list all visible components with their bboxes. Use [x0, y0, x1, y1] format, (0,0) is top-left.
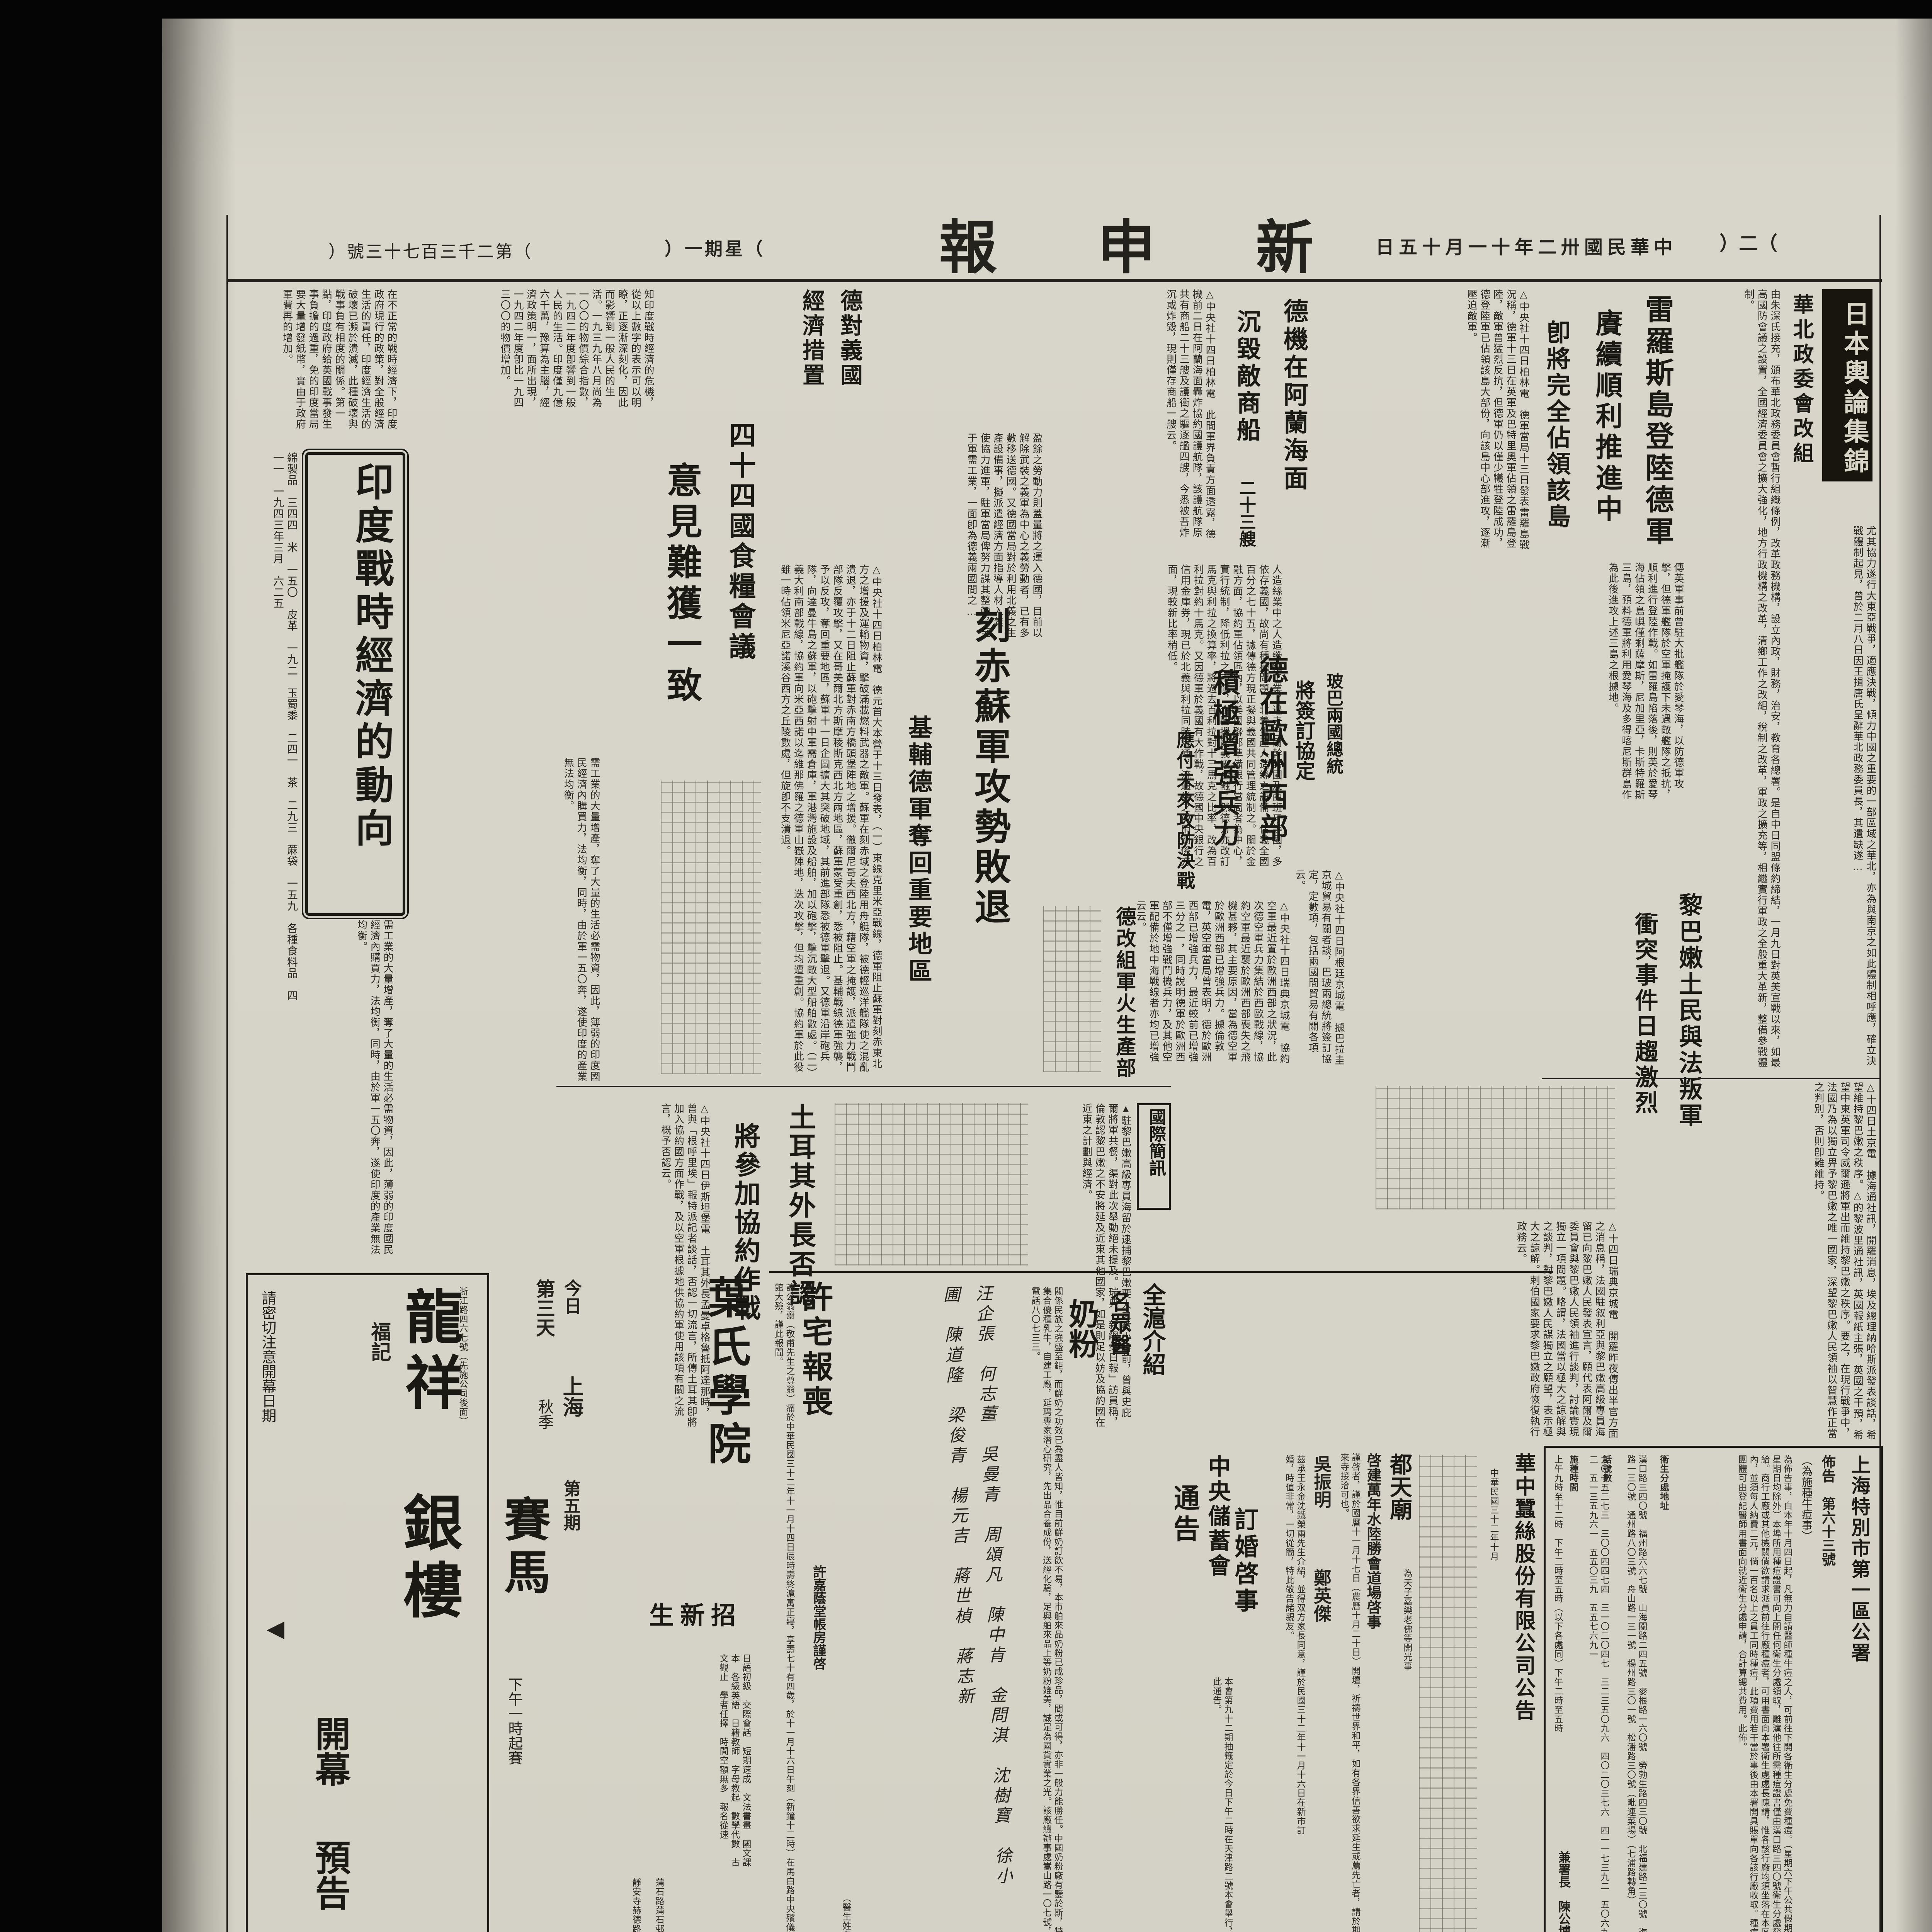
page-number: ）二（ [1719, 228, 1777, 256]
milk-ad-title-1: 全滬介紹 [1139, 1283, 1169, 1422]
district-notice-subject: （為施種牛痘事） [1797, 1455, 1814, 1725]
article-leros-body: △中央社十四日柏林電 德軍當局十三日發表雷羅島戰況稱，德軍十三日在英軍及巴特里奧… [1378, 289, 1530, 556]
unreadable-columns-lebanon [1376, 1086, 1615, 1209]
engagement-name-1: 吳振明 [1309, 1455, 1334, 1555]
left-frame-rule [226, 215, 228, 1932]
school-address-1: 蒲石路蒲石邨廿五號 [649, 1878, 665, 1932]
headline-munitions: 德改組軍火生產部 [1106, 906, 1138, 1107]
racing-line-time: 下午一時起賽 [506, 1677, 525, 1917]
racing-line-session: 第五期 [561, 1480, 583, 1596]
obituary-signer: 許嘉蔭堂帳房謹啓 [808, 1565, 828, 1913]
milk-ad-note: （醫生姓名以筆劃多少為次序） [838, 1893, 852, 1932]
article-lebanon-body: △十四日土京電 據海通社訊，開羅消息，埃及總理納哈斯派發表談話，希望維持黎巴嫩之… [1712, 1082, 1877, 1441]
school-address-2: 靜安寺赫德路廵年坊13號 [626, 1878, 641, 1932]
headline-lebanon-2: 衝突事件日趨激烈 [1623, 912, 1662, 1198]
article-india-intro: 在不正常的戰時經濟下，印度政府現行的政策，對全般經濟生活的責任，印度經濟生活的破… [247, 289, 398, 436]
japan-opinion-subhead: 華北政委會改組 [1784, 294, 1817, 510]
silk-notice-date: 中華民國三十二年十月 [1482, 1468, 1499, 1739]
racing-title: 賽馬 [502, 1495, 556, 1658]
headline-west-1: 德在歐洲西部 [1247, 655, 1292, 902]
headline-leros-3: 卽將完全佔領該島 [1535, 320, 1573, 567]
district-time-label: 施種時間 [1563, 1455, 1579, 1555]
headline-italy-1: 德對義國 [830, 289, 866, 417]
racing-line-autumn: 秋季 [536, 1399, 556, 1476]
headline-west-2: 積極增強兵力 [1201, 668, 1243, 916]
racing-line-day3: 第三天 [534, 1279, 558, 1387]
mid-rule-left [556, 1086, 1171, 1087]
india-feature-box-title: 印度戰時經濟的動向 [305, 452, 405, 916]
temple-notice-body: 謹啓者，謹於國曆十一月十七日（農曆十月二十日）開壇，祈禱世界和平，如有各界信善欲… [1339, 1453, 1361, 1932]
mid-rule-right [1542, 1078, 1880, 1079]
ads-band1-rule [769, 1271, 1553, 1273]
district-signer: 兼署長 陳公博 [1549, 1851, 1573, 1932]
newspaper-scan: ）二（ 日五十月一十年二卅國民華中 報申新 ）一期星（ ）號三十七百三千二第（ … [0, 0, 1932, 1932]
headline-pact-2: 將簽訂協定 [1295, 680, 1318, 846]
longxiang-address: 浙江路四六七號（先施公司後面） [451, 1287, 468, 1634]
savings-subtitle: 通告 [1175, 1484, 1203, 1600]
scan-gutter-shadow [162, 19, 236, 1932]
unreadable-columns-mid [835, 1103, 1028, 1265]
date-line: 日五十月一十年二卅國民華中 [1376, 232, 1677, 259]
article-kerch-body: △中央社十四日柏林電 德元首大本營于十三日發表，（一）東線克里米亞戰線，德軍阻止… [771, 564, 883, 1078]
pointer-icon: ◀ [267, 1615, 284, 1642]
headline-aland-1: 德機在阿蘭海面 [1271, 298, 1311, 538]
longxiang-open-1: 開幕 [309, 1716, 355, 1832]
headline-pact-1: 玻巴兩國總統 [1318, 672, 1345, 850]
headline-food-2: 意見難獲一致 [657, 462, 707, 763]
school-title: 葉氏學院 [699, 1275, 757, 1577]
milk-ad-body: 關係民族之強盛至鉅，而鮮奶之功效已為盡人皆知，惟目前鮮奶訂飲不易，本市舶來品奶粉… [1012, 1287, 1063, 1932]
article-india-body: 知印度戰時經濟的危機，從以上數字的表示可以明瞭，正逐漸深刻化，因此而影響到一般人… [404, 289, 655, 413]
weekday: ）一期星（ [665, 235, 765, 260]
issue-number: ）號三十七百三千二第（ [328, 238, 532, 262]
temple-notice-title: 啓建萬年水陸勝會道場啓事 [1363, 1453, 1383, 1832]
district-notice-docno: 佈告 第六十三號 [1816, 1455, 1838, 1764]
racing-line-today: 今日 [561, 1279, 584, 1356]
district-notice-org: 上海特別市第一區公署 [1840, 1455, 1873, 1918]
header-rule [228, 279, 1882, 282]
article-india-body-cont: 需工業的大量增產，奪了大量的生活必需物資，因此，薄弱的印度國民經濟內購買力，法均… [247, 920, 394, 1256]
masthead: 報申新 [939, 201, 1414, 285]
longxiang-open-2: 預告 [309, 1839, 355, 1932]
silk-notice-title: 華中蠶絲股份有限公司公告 [1504, 1453, 1539, 1932]
district-notice-body: 為佈告事，自本年十月四日起，凡無力自請醫師種牛痘之人，可前往下開各衛生分處免費種… [1673, 1455, 1793, 1932]
japan-opinion-box-title: 日本輿論集錦 [1822, 289, 1872, 481]
scan-edge-shadow-right [1895, 19, 1932, 1932]
milk-ad-title-3: 奶粉 [1067, 1298, 1103, 1399]
headline-leros-2: 賡續順利推進中 [1584, 309, 1626, 556]
obituary-body: 許公翁齋（敬甫先生之尊翁）痛於中華民國三十二年十一月十四日辰時壽終滬寓正寢，享壽… [762, 1283, 795, 1932]
japan-opinion-body-cont: 尤其協力遂行大東亞戰爭，適應決戰，傾力中國之重要的一部區域之華北，亦為與南京之如… [1784, 526, 1877, 1070]
milk-ad-title-2: 名眾醫 [1106, 1291, 1134, 1406]
article-india-body-right: 需工業的大量增產，奪了大量的生活必需物資，因此，薄弱的印度國民經濟內購買力，法均… [404, 757, 601, 1082]
savings-title: 中央儲蓄會 [1205, 1455, 1233, 1656]
longxiang-note: 請密切注意開幕日期 [260, 1291, 278, 1584]
unreadable-columns-silk [1419, 1455, 1477, 1932]
article-lebanon-body-cont: △十四日瑞典京城電 開羅昨夜傳出半官方面之消息稱，法國駐叙利亞與黎巴嫩高級專員海… [1430, 1221, 1619, 1441]
district-phones: 九〇一五二七三 三〇〇四四七四 三一〇二〇四七 三二三五〇九六 四〇二〇三七六 … [1577, 1455, 1610, 1932]
headline-briefs: 國際簡訊 [1137, 1103, 1171, 1210]
headline-food-1: 四十四國食糧會議 [713, 421, 759, 692]
headline-italy-2: 經濟措置 [792, 289, 828, 417]
unreadable-columns-munitions [1043, 906, 1101, 1072]
district-addresses: 漢口路三四〇號 福州路六六七號 山海關路二四五號 麥根路一六〇號 勞勃生路四三〇… [1615, 1455, 1648, 1932]
school-subtitle: 生新招 [649, 1596, 742, 1631]
racing-line-shanghai: 上海 [561, 1376, 587, 1468]
engagement-body: 茲承王永金沈鐵榮兩先生介紹，並得双方家長同意，謹於民國三十二年十一月十六日在新市… [1263, 1455, 1306, 1841]
article-leros-body-cont: 傳英軍事前曾駐大批艦隊於愛琴海，以防德軍攻擊，但德軍艦隊於空軍掩護下未遇敵艦隊之… [1352, 562, 1685, 802]
district-addr-label: 衛生分處地址 [1650, 1455, 1669, 1617]
longxiang-title-2: 福記 [366, 1321, 393, 1422]
milk-ad-doctor-signatures: 汪企張 何志薑 吳曼青 周頌凡 陳中肯 金問淇 沈樹寶 徐小圃 陳道隆 梁俊青 … [832, 1284, 1019, 1892]
headline-kerch-1: 刻赤蘇軍攻勢敗退 [957, 607, 1015, 966]
headline-lebanon-1: 黎巴嫩土民與法叛軍 [1665, 893, 1706, 1202]
engagement-title: 訂婚啓事 [1235, 1507, 1261, 1723]
headline-kerch-2: 基輔德軍奪回重要地區 [893, 715, 935, 1078]
savings-body: 本會第九十二期抽籤定於今日下午二時在天津路二號本會舉行，特此通告。 [1177, 1677, 1233, 1932]
article-pact-body: △中央社十四日阿根廷京城電 據巴拉圭京城貿易有關者談，巴玻兩總統將簽訂協定，定數… [1295, 869, 1345, 1070]
article-italy-body-cont: 人造絲業中之人造纖維工業，過去巴爾幹諸國及西班牙等國，多依存義國，故尚有種種問題… [1043, 564, 1283, 873]
engagement-name-2: 鄭英傑 [1309, 1569, 1334, 1669]
headline-aland-2: 沉毀敵商船 [1224, 309, 1264, 475]
unreadable-columns-food [661, 781, 761, 1074]
temple-extra-line: 為天子嘉樂老佛等開光事 [1386, 1569, 1413, 1917]
school-details: 日語初級 交際會話 短期速成 文法書畫 國文課本 各級英語 日籍教師 字母教起 … [597, 1654, 752, 1870]
temple-name: 都天廟 [1386, 1453, 1415, 1553]
obituary-title: 許宅報喪 [797, 1281, 837, 1528]
district-times: 上午九時至十二時 下午二時至五時（以下各處同）下午二時至五時 [1548, 1455, 1563, 1841]
article-aland-body: △中央社十四日柏林電 此間軍界負責方面透露，德機前二日在阿蘭海面轟炸協約國護航隊… [1050, 289, 1216, 546]
headline-leros-1: 雷羅斯島登陸德軍 [1635, 294, 1678, 565]
